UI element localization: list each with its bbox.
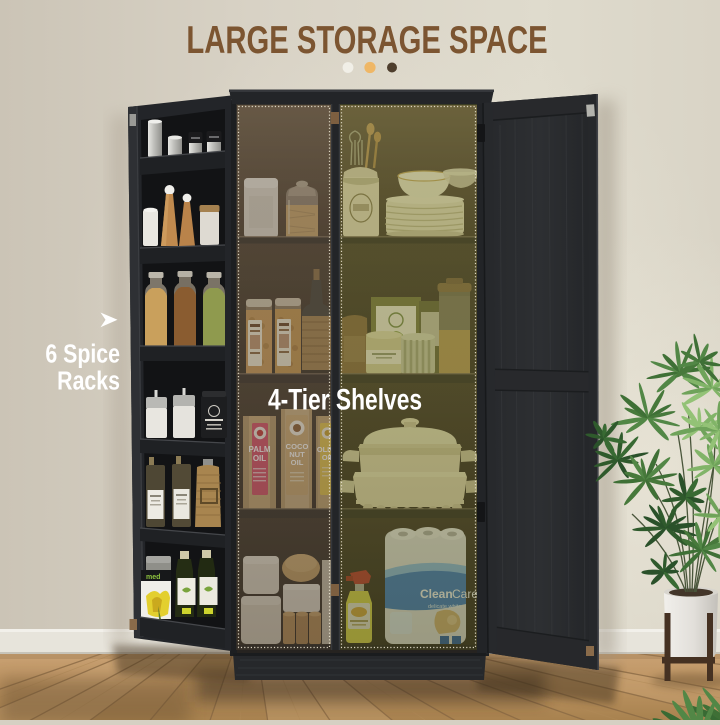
svg-text:Racks: Racks: [57, 367, 120, 397]
svg-text:6 Spice: 6 Spice: [45, 340, 120, 370]
svg-text:LARGE STORAGE SPACE: LARGE STORAGE SPACE: [186, 19, 547, 62]
svg-text:med: med: [146, 574, 160, 581]
svg-text:4-Tier Shelves: 4-Tier Shelves: [268, 382, 422, 416]
